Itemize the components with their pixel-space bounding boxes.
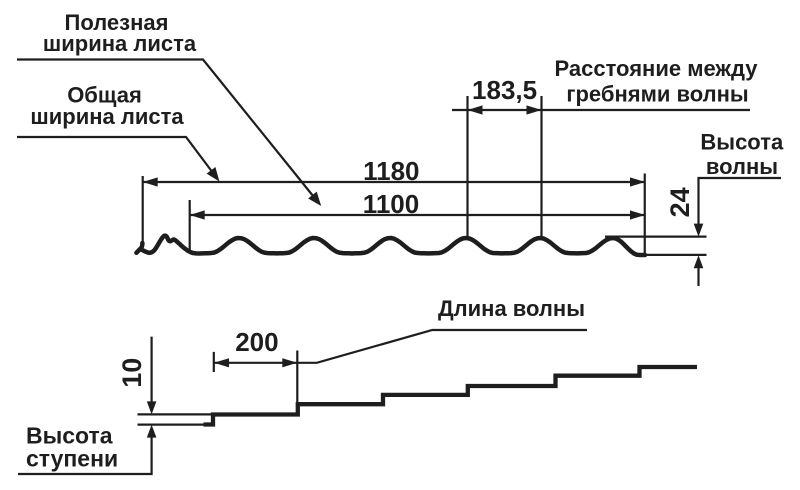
svg-text:200: 200 [235,327,278,357]
svg-text:Высота: Высота [700,129,784,154]
svg-text:10: 10 [117,358,147,388]
svg-text:Расстояние между: Расстояние между [554,56,758,81]
svg-text:волны: волны [706,154,778,179]
svg-text:ширина листа: ширина листа [30,104,184,129]
svg-text:Длина волны: Длина волны [438,296,585,321]
svg-text:24: 24 [665,187,695,217]
svg-text:1180: 1180 [363,156,419,186]
svg-text:ширина листа: ширина листа [43,31,197,56]
svg-text:183,5: 183,5 [472,75,537,105]
svg-text:1100: 1100 [363,189,419,219]
svg-text:ступени: ступени [26,446,118,472]
svg-text:гребнями волны: гребнями волны [566,82,748,107]
